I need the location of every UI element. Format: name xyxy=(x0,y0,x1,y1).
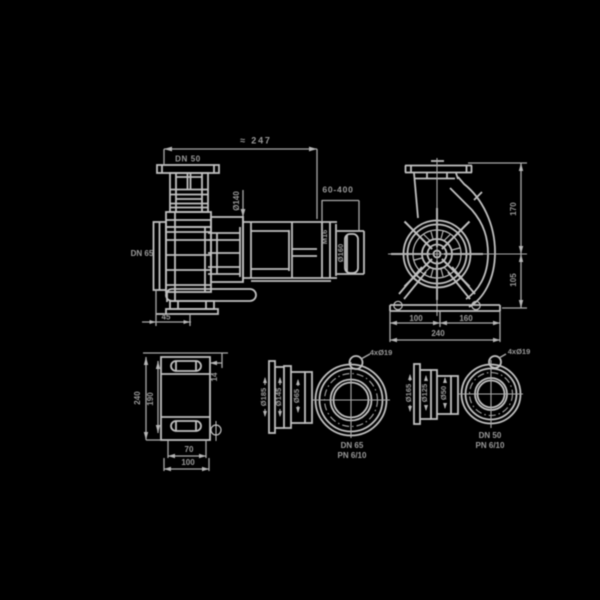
svg-text:DN 50: DN 50 xyxy=(175,155,201,164)
svg-text:DN 65: DN 65 xyxy=(131,249,154,258)
svg-text:PN 6/10: PN 6/10 xyxy=(476,441,505,450)
svg-text:Ø140: Ø140 xyxy=(232,191,241,211)
svg-text:Ø165: Ø165 xyxy=(404,384,413,402)
svg-text:45: 45 xyxy=(162,313,171,322)
svg-text:60-400: 60-400 xyxy=(322,185,353,195)
svg-text:160: 160 xyxy=(459,314,473,323)
svg-text:240: 240 xyxy=(133,391,142,405)
svg-text:PN 6/10: PN 6/10 xyxy=(338,451,367,460)
svg-text:170: 170 xyxy=(509,202,518,216)
svg-text:M16: M16 xyxy=(320,230,329,245)
svg-text:105: 105 xyxy=(509,273,518,287)
svg-text:≈ 247: ≈ 247 xyxy=(240,136,271,146)
svg-text:Ø65: Ø65 xyxy=(292,389,301,403)
svg-text:Ø50: Ø50 xyxy=(439,386,448,400)
svg-text:240: 240 xyxy=(431,329,445,338)
svg-text:70: 70 xyxy=(185,445,194,454)
svg-text:Ø125: Ø125 xyxy=(420,384,429,402)
svg-text:DN 65: DN 65 xyxy=(341,441,364,450)
svg-text:4xØ19: 4xØ19 xyxy=(370,348,393,357)
svg-text:100: 100 xyxy=(409,314,423,323)
svg-text:Ø160: Ø160 xyxy=(336,244,345,262)
svg-text:190: 190 xyxy=(146,392,155,406)
svg-text:14: 14 xyxy=(210,372,219,381)
svg-text:Ø145: Ø145 xyxy=(274,388,283,406)
svg-text:100: 100 xyxy=(181,458,195,467)
svg-text:Ø185: Ø185 xyxy=(259,388,268,406)
svg-text:DN 50: DN 50 xyxy=(479,431,502,440)
svg-text:4xØ19: 4xØ19 xyxy=(508,347,531,356)
